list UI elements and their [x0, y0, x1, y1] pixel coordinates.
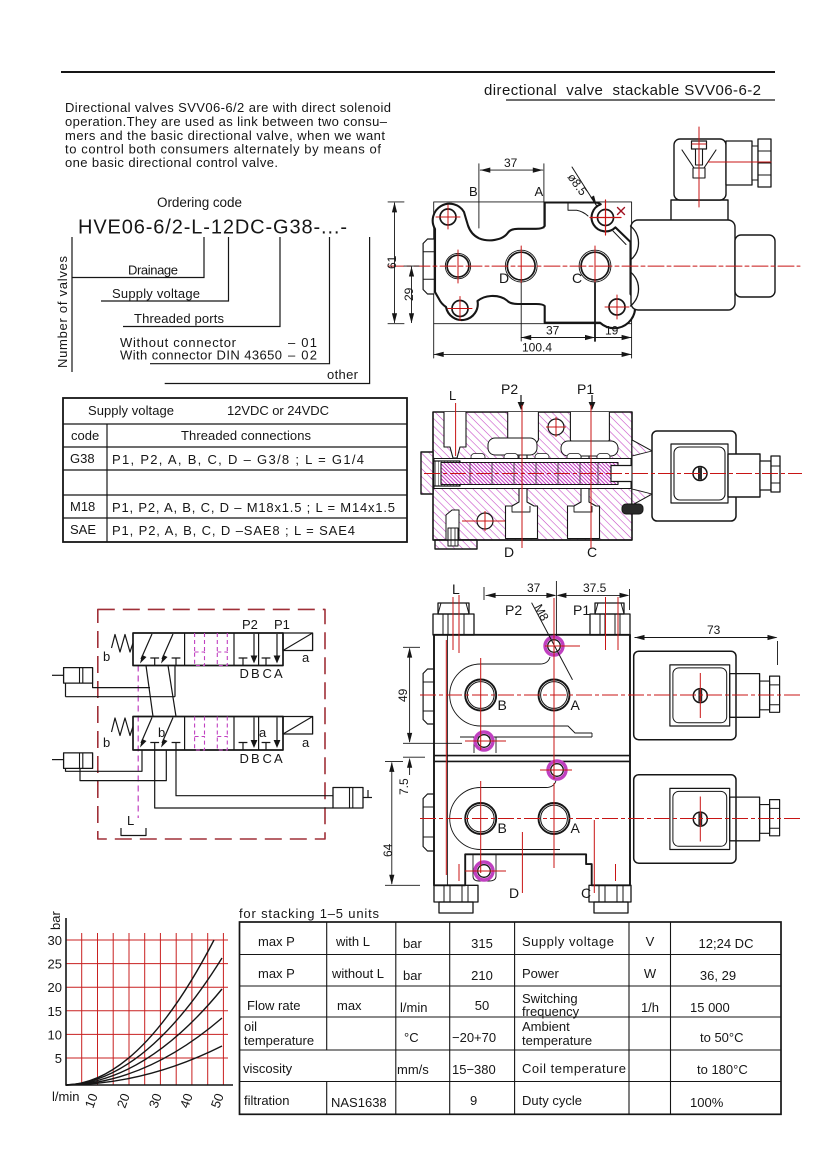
svg-text:Ambient: Ambient — [522, 1019, 570, 1034]
svg-text:oil: oil — [244, 1019, 257, 1034]
svg-text:max P: max P — [258, 934, 295, 949]
svg-text:315: 315 — [471, 936, 493, 951]
svg-text:30: 30 — [146, 1091, 165, 1110]
svg-text:10: 10 — [48, 1027, 62, 1042]
svg-text:B: B — [251, 666, 260, 681]
svg-text:A: A — [535, 184, 544, 199]
svg-text:– 02: – 02 — [288, 348, 317, 363]
svg-text:for stacking 1–5 units: for stacking 1–5 units — [239, 906, 380, 921]
svg-text:max P: max P — [258, 966, 295, 981]
svg-text:C: C — [581, 885, 591, 901]
svg-text:15: 15 — [48, 1004, 62, 1019]
svg-text:With connector DIN 43650: With connector DIN 43650 — [120, 348, 282, 363]
svg-text:37: 37 — [546, 324, 560, 338]
svg-text:61: 61 — [385, 255, 399, 269]
svg-text:G38: G38 — [70, 451, 95, 466]
svg-text:D: D — [509, 885, 519, 901]
svg-text:NAS1638: NAS1638 — [331, 1095, 387, 1110]
svg-text:B: B — [251, 751, 260, 766]
svg-text:a: a — [302, 735, 310, 750]
svg-text:A: A — [571, 697, 581, 713]
svg-text:1/h: 1/h — [641, 1000, 659, 1015]
svg-text:P2: P2 — [505, 602, 522, 618]
svg-text:b: b — [103, 735, 110, 750]
svg-text:Drainage: Drainage — [128, 263, 178, 278]
svg-text:C: C — [587, 544, 597, 560]
svg-text:l/min: l/min — [52, 1089, 79, 1104]
svg-text:B: B — [498, 697, 507, 713]
svg-text:20: 20 — [114, 1091, 133, 1110]
svg-text:L: L — [449, 388, 456, 403]
svg-text:Number of valves: Number of valves — [55, 256, 70, 369]
svg-text:P1: P1 — [573, 602, 590, 618]
svg-text:Threaded connections: Threaded connections — [181, 428, 312, 443]
svg-text:to 50°C: to 50°C — [700, 1030, 744, 1045]
svg-text:−20+70: −20+70 — [452, 1030, 496, 1045]
svg-text:Supply voltage: Supply voltage — [522, 934, 614, 949]
svg-text:5: 5 — [55, 1051, 62, 1066]
svg-text:b: b — [158, 725, 165, 740]
svg-text:D: D — [240, 666, 249, 681]
svg-text:A: A — [274, 751, 283, 766]
svg-text:bar: bar — [403, 936, 422, 951]
svg-text:12;24 DC: 12;24 DC — [699, 936, 754, 951]
svg-text:73: 73 — [707, 623, 721, 637]
svg-text:D: D — [499, 270, 509, 286]
svg-text:20: 20 — [48, 980, 62, 995]
svg-text:with L: with L — [335, 934, 370, 949]
svg-text:30: 30 — [48, 933, 62, 948]
svg-text:V: V — [646, 934, 655, 949]
svg-text:P2: P2 — [501, 381, 518, 397]
svg-text:operation.They are used as lin: operation.They are used as link between … — [65, 114, 388, 129]
svg-text:10: 10 — [82, 1091, 101, 1110]
svg-text:P1, P2, A, B, C, D –SAE8 ; L =: P1, P2, A, B, C, D –SAE8 ; L = SAE4 — [112, 523, 355, 538]
svg-text:bar: bar — [403, 968, 422, 983]
svg-text:49: 49 — [396, 688, 410, 702]
svg-text:50: 50 — [475, 998, 489, 1013]
svg-text:15−380: 15−380 — [452, 1062, 496, 1077]
svg-text:Duty cycle: Duty cycle — [522, 1093, 582, 1108]
svg-text:Directional valves SVV06-6/2 a: Directional valves SVV06-6/2 are with di… — [65, 100, 391, 115]
svg-text:D: D — [504, 544, 514, 560]
svg-text:A: A — [571, 820, 581, 836]
svg-text:frequency: frequency — [522, 1004, 580, 1019]
svg-text:Ordering code: Ordering code — [157, 195, 242, 210]
svg-text:25: 25 — [48, 957, 62, 972]
svg-text:37: 37 — [527, 581, 541, 595]
svg-text:viscosity: viscosity — [243, 1061, 293, 1076]
svg-text:210: 210 — [471, 968, 493, 983]
svg-text:Flow rate: Flow rate — [247, 998, 300, 1013]
svg-text:7.5: 7.5 — [397, 778, 411, 795]
svg-text:b: b — [103, 649, 110, 664]
svg-text:Coil temperature: Coil temperature — [522, 1061, 626, 1076]
svg-text:to 180°C: to 180°C — [697, 1062, 748, 1077]
svg-text:C: C — [263, 751, 272, 766]
svg-text:C: C — [263, 666, 272, 681]
svg-text:9: 9 — [470, 1093, 477, 1108]
svg-text:P1, P2, A, B, C, D – G3/8 ; L: P1, P2, A, B, C, D – G3/8 ; L = G1/4 — [112, 452, 364, 467]
svg-text:Threaded ports: Threaded ports — [134, 311, 225, 326]
svg-text:A: A — [274, 666, 283, 681]
svg-text:l/min: l/min — [400, 1000, 427, 1015]
svg-text:40: 40 — [177, 1091, 196, 1110]
svg-text:50: 50 — [208, 1091, 227, 1110]
svg-text:a: a — [259, 725, 267, 740]
svg-text:19: 19 — [605, 324, 619, 338]
svg-text:°C: °C — [404, 1030, 419, 1045]
svg-text:B: B — [469, 184, 478, 199]
svg-text:29: 29 — [402, 287, 416, 301]
svg-text:filtration: filtration — [244, 1093, 290, 1108]
svg-text:M18: M18 — [70, 499, 95, 514]
svg-text:M8: M8 — [531, 602, 551, 624]
svg-text:P1: P1 — [577, 381, 594, 397]
svg-text:15 000: 15 000 — [690, 1000, 730, 1015]
svg-text:37: 37 — [504, 156, 518, 170]
svg-text:temperature: temperature — [244, 1033, 314, 1048]
svg-text:P1: P1 — [274, 617, 290, 632]
svg-text:a: a — [302, 650, 310, 665]
svg-text:Supply voltage: Supply voltage — [112, 286, 200, 301]
svg-text:100.4: 100.4 — [522, 341, 552, 355]
svg-text:P2: P2 — [242, 617, 258, 632]
svg-text:Supply voltage: Supply voltage — [88, 403, 174, 418]
svg-text:L: L — [452, 581, 460, 597]
svg-text:Power: Power — [522, 966, 560, 981]
svg-text:12VDC or 24VDC: 12VDC or 24VDC — [227, 403, 329, 418]
svg-text:B: B — [498, 820, 507, 836]
svg-text:100%: 100% — [690, 1095, 724, 1110]
svg-text:36, 29: 36, 29 — [700, 968, 736, 983]
svg-text:37.5: 37.5 — [583, 581, 607, 595]
svg-text:64: 64 — [381, 843, 395, 857]
svg-text:SAE: SAE — [70, 522, 96, 537]
svg-text:one basic directional control: one basic directional control valve. — [65, 155, 278, 170]
svg-text:W: W — [644, 966, 657, 981]
svg-text:P1, P2, A, B, C, D – M18x1.5 ;: P1, P2, A, B, C, D – M18x1.5 ; L = M14x1… — [112, 500, 395, 515]
svg-text:C: C — [572, 270, 582, 286]
svg-text:code: code — [71, 428, 99, 443]
svg-text:HVE06-6/2-L-12DC-G38-...-: HVE06-6/2-L-12DC-G38-...- — [78, 217, 347, 239]
svg-text:directional valve stackable: directional valve stackable SVV06-6-2 — [484, 82, 761, 99]
svg-text:temperature: temperature — [522, 1033, 592, 1048]
svg-text:L: L — [127, 813, 134, 828]
svg-text:D: D — [240, 751, 249, 766]
svg-text:other: other — [327, 367, 359, 382]
svg-text:without L: without L — [331, 966, 384, 981]
svg-text:mm/s: mm/s — [397, 1062, 429, 1077]
svg-text:max: max — [337, 998, 362, 1013]
svg-text:bar: bar — [48, 911, 63, 930]
